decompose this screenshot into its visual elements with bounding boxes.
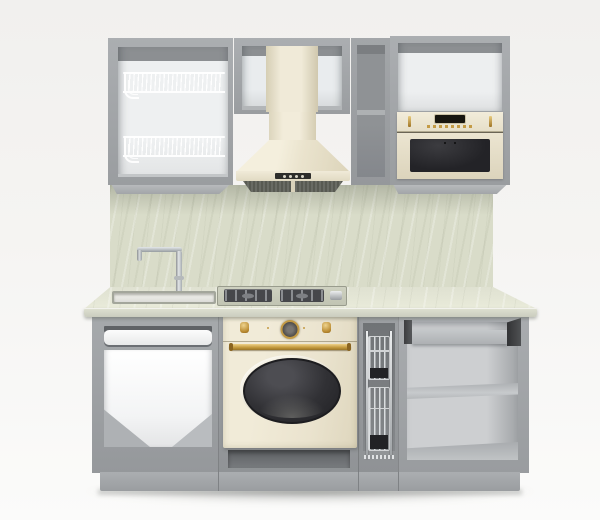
microwave-button-row: [427, 125, 473, 128]
base-cabinet-open-shelves: [398, 317, 529, 473]
burner-cap: [242, 293, 254, 298]
base-cabinet-pullout: [358, 317, 399, 473]
hood-button: [283, 175, 286, 178]
cabinet-underside: [108, 185, 233, 194]
drawer-runner-left: [404, 320, 412, 344]
oven-knob: [322, 322, 331, 333]
hood-button: [289, 175, 292, 178]
filter-divider: [291, 181, 295, 192]
pullout-shelf: [412, 330, 507, 344]
panel-mark: [267, 327, 269, 329]
door-hinge-dot: [444, 142, 446, 144]
base-cabinet-sink: [92, 317, 218, 473]
countertop-front-edge: [84, 308, 537, 317]
retro-oven: [223, 315, 357, 448]
hood-grease-filters: [243, 181, 343, 192]
drawer-front-white: [104, 330, 212, 345]
cabinet-shelf: [357, 110, 385, 115]
brass-accent: [489, 116, 492, 127]
cabinet-interior: [357, 45, 385, 177]
hood-control-panel: [275, 173, 311, 179]
rack-wires: [125, 138, 223, 155]
hood-chimney-upper: [266, 46, 318, 112]
microwave-door: [397, 132, 503, 179]
faucet-collar: [174, 276, 184, 280]
microwave-control-panel: [397, 112, 503, 132]
hood-button: [295, 175, 298, 178]
built-in-microwave: [397, 112, 503, 179]
plinth-seam: [218, 472, 219, 491]
kitchen-render: [0, 0, 600, 520]
sink-bowl: [114, 293, 214, 302]
dish-drying-rack-bottom: [123, 136, 225, 163]
basket-tier-bottom: [368, 387, 390, 451]
cabinet-underside: [390, 185, 510, 194]
cooktop-knob: [330, 291, 342, 300]
door-hinge-dot: [454, 142, 456, 144]
wall-cabinet-dish-racks: [108, 38, 233, 185]
plinth-seam: [398, 472, 399, 491]
cavity-corner-shadow: [172, 401, 212, 447]
gas-burner-right: [280, 289, 324, 302]
hood-button: [301, 175, 304, 178]
oven-clock: [281, 320, 300, 339]
under-oven-recess: [228, 450, 350, 468]
oven-brass-handle: [229, 344, 351, 350]
wall-cabinet-narrow: [351, 38, 390, 185]
cabinet-open-cavity: [104, 350, 212, 447]
glass-reflection: [258, 395, 326, 419]
microwave-display: [435, 115, 465, 123]
hood-front-band: [236, 171, 350, 181]
basket-tier-top: [368, 336, 390, 380]
gas-burner-left: [224, 289, 272, 302]
basket-tray: [370, 368, 388, 378]
hood-chimney-lower: [269, 112, 316, 142]
toe-kick-plinth: [100, 472, 520, 491]
burner-cap: [296, 293, 308, 298]
oven-knob: [240, 322, 249, 333]
panel-mark: [303, 327, 305, 329]
oven-window-glass: [243, 358, 341, 424]
drawer-runner-right: [507, 318, 521, 346]
hood-canopy: [236, 140, 350, 172]
basket-slide: [364, 455, 394, 459]
inset-sink: [112, 291, 216, 304]
rack-bracket: [128, 80, 138, 95]
microwave-door-glass: [410, 139, 490, 172]
brass-accent: [408, 116, 411, 127]
gas-cooktop: [217, 286, 347, 306]
faucet-spout-tip: [137, 250, 142, 261]
dish-drying-rack-top: [123, 72, 225, 99]
plinth-seam: [358, 472, 359, 491]
panel-divider: [223, 341, 357, 342]
rack-bracket: [128, 144, 138, 159]
cabinet-open-niche: [398, 43, 502, 111]
pullout-wire-basket: [366, 331, 392, 459]
basket-rail: [390, 331, 392, 459]
basket-tray: [370, 435, 388, 449]
cavity-corner-shadow: [104, 395, 150, 447]
cabinet-interior: [118, 47, 228, 177]
rack-wires: [125, 74, 223, 91]
